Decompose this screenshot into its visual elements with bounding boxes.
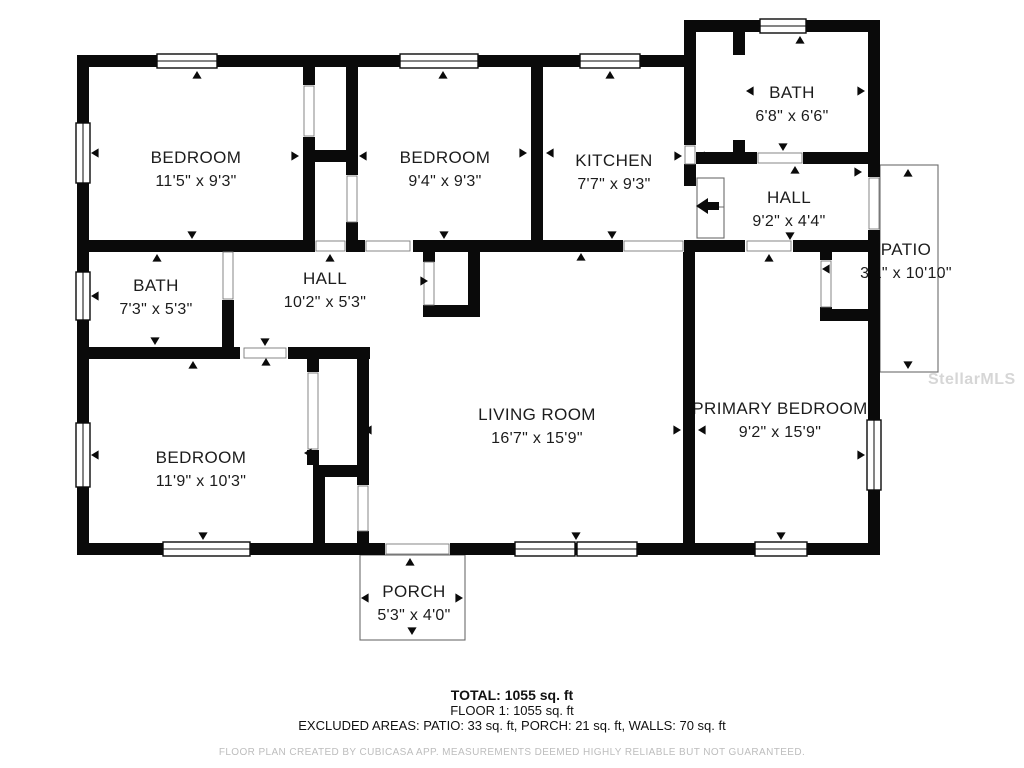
room-label: BATH: [769, 83, 815, 102]
wall: [684, 164, 696, 186]
total-area-text: TOTAL: 1055 sq. ft: [0, 688, 1024, 703]
room-dimensions: 6'8" x 6'6": [755, 108, 828, 125]
wall: [684, 240, 745, 252]
wall: [733, 32, 745, 55]
porch-door: [386, 544, 449, 554]
window: [76, 123, 90, 183]
wall: [683, 252, 695, 543]
floor-area-text: FLOOR 1: 1055 sq. ft: [0, 703, 1024, 718]
window: [515, 542, 575, 556]
wall: [696, 152, 757, 164]
excluded-areas-text: EXCLUDED AREAS: PATIO: 33 sq. ft, PORCH:…: [0, 718, 1024, 733]
room-label: PATIO: [881, 240, 932, 259]
room-dimensions: 10'2" x 5'3": [284, 294, 366, 311]
entry-arrow-icon: [696, 198, 719, 214]
kitchen-door: [685, 146, 695, 164]
wall: [803, 152, 868, 164]
closet-door: [304, 86, 314, 136]
room-label: BEDROOM: [156, 448, 247, 467]
room-label: PORCH: [382, 582, 445, 601]
wall: [89, 240, 315, 252]
wall: [531, 67, 543, 243]
wall: [413, 240, 623, 252]
bedroom-door: [366, 241, 410, 251]
wall: [820, 309, 868, 321]
closet-door: [358, 486, 368, 531]
closet-door: [424, 262, 434, 305]
room-dimensions: 9'4" x 9'3": [408, 173, 481, 190]
patio-door: [869, 178, 879, 229]
room-label: KITCHEN: [575, 151, 652, 170]
bedroom-door: [747, 241, 791, 251]
bedroom-door: [244, 348, 286, 358]
window: [580, 54, 640, 68]
room-dimensions: 7'3" x 5'3": [119, 301, 192, 318]
closet-door: [308, 373, 318, 449]
wall: [357, 531, 369, 543]
wall: [868, 32, 880, 177]
window: [400, 54, 478, 68]
area-summary: TOTAL: 1055 sq. ft FLOOR 1: 1055 sq. ft …: [0, 688, 1024, 733]
room-dimensions: 11'9" x 10'3": [156, 473, 246, 490]
wall: [733, 140, 745, 152]
window: [76, 423, 90, 487]
room-label: BEDROOM: [151, 148, 242, 167]
room-dimensions: 9'2" x 4'4": [752, 213, 825, 230]
bath-door: [758, 153, 802, 163]
wall: [684, 67, 696, 145]
floor-plan-svg: BEDROOM11'5" x 9'3"BEDROOM9'4" x 9'3"KIT…: [0, 0, 1024, 680]
room-dimensions: 7'7" x 9'3": [577, 176, 650, 193]
window: [76, 272, 90, 320]
wall: [303, 67, 315, 85]
room-label: HALL: [767, 188, 811, 207]
window: [163, 542, 250, 556]
kitchen-opening: [624, 241, 683, 251]
room-dimensions: 5'3" x 4'0": [377, 607, 450, 624]
wall: [820, 242, 832, 260]
window: [577, 542, 637, 556]
room-label: BATH: [133, 276, 179, 295]
wall: [793, 240, 880, 252]
window: [755, 542, 807, 556]
window: [157, 54, 217, 68]
wall: [222, 300, 234, 359]
floor-plan-page: BEDROOM11'5" x 9'3"BEDROOM9'4" x 9'3"KIT…: [0, 0, 1024, 768]
window: [760, 19, 806, 33]
room-label: BEDROOM: [400, 148, 491, 167]
wall: [346, 55, 358, 175]
wall: [468, 248, 480, 317]
wall: [423, 248, 435, 262]
closet-door: [347, 176, 357, 222]
hall-opening: [316, 241, 345, 251]
room-dimensions: 11'5" x 9'3": [155, 173, 236, 190]
disclaimer-text: FLOOR PLAN CREATED BY CUBICASA APP. MEAS…: [0, 747, 1024, 758]
watermark: StellarMLS: [928, 371, 1016, 389]
wall: [307, 359, 319, 372]
bath-door: [223, 252, 233, 299]
wall: [77, 347, 240, 359]
room-dimensions: 9'2" x 15'9": [739, 424, 821, 441]
wall: [868, 230, 880, 555]
room-dimensions: 16'7" x 15'9": [491, 430, 583, 447]
wall: [346, 240, 365, 252]
wall: [357, 347, 369, 485]
room-label: HALL: [303, 269, 347, 288]
room-label: PRIMARY BEDROOM: [692, 399, 867, 418]
room-label: LIVING ROOM: [478, 405, 596, 424]
wall: [303, 162, 315, 252]
window: [867, 420, 881, 490]
wall: [313, 465, 325, 543]
